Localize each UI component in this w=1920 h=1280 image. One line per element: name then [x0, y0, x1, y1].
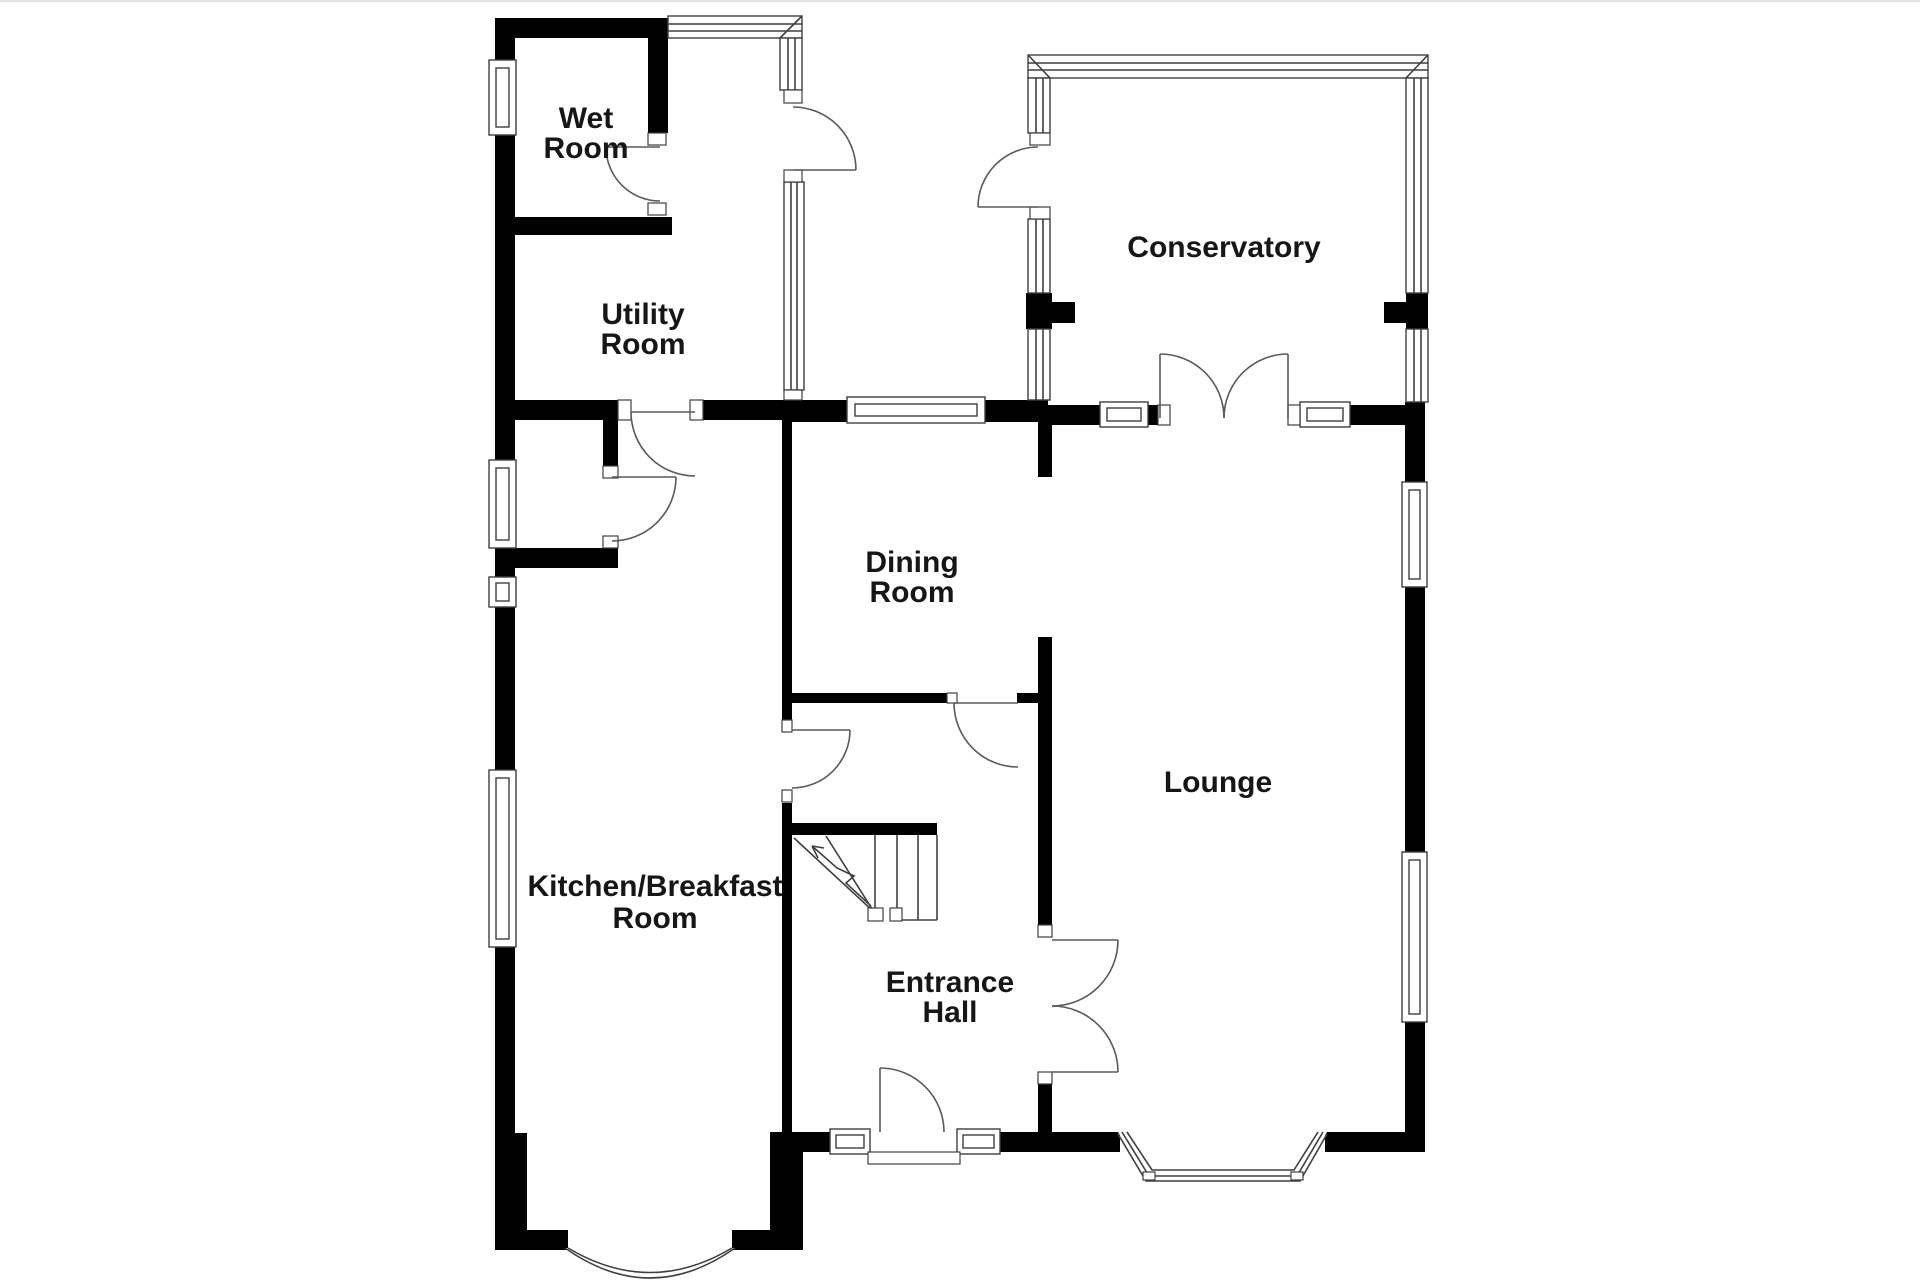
wall-segment	[792, 693, 947, 703]
wall-segment	[1000, 1132, 1038, 1152]
room-label-wet-room-2: Room	[544, 132, 629, 165]
stairs	[794, 835, 937, 921]
wall-segment	[1405, 1022, 1425, 1152]
double-doors-lounge	[1052, 940, 1118, 1072]
window	[1402, 852, 1427, 1022]
floorplan-page: Wet Room Utility Room Conservatory Dinin…	[0, 0, 1920, 1280]
wall-segment	[1325, 1132, 1405, 1152]
wall-segment	[732, 1230, 803, 1250]
door-lobby	[612, 477, 676, 541]
window	[957, 1129, 1000, 1154]
wall-segment	[495, 607, 515, 770]
conservatory-glazed-walls	[1028, 55, 1428, 402]
french-doors-conservatory	[1160, 354, 1288, 418]
room-label-dining-1: Dining	[865, 546, 958, 579]
window	[1402, 482, 1427, 587]
conservatory-pillar-right	[1384, 293, 1428, 329]
door-utility	[631, 412, 695, 476]
wall-segment	[1038, 637, 1052, 925]
wall-segment	[1350, 405, 1405, 425]
wall-segment	[495, 400, 618, 420]
front-door-threshold	[868, 1152, 960, 1164]
room-label-utility-1: Utility	[601, 298, 685, 331]
room-label-dining-2: Room	[870, 576, 955, 609]
walls	[495, 18, 1425, 1250]
wall-segment	[1052, 1132, 1120, 1152]
window	[489, 577, 516, 607]
wall-segment	[782, 420, 792, 720]
wall-segment	[792, 823, 937, 835]
wall-segment	[495, 548, 515, 577]
wall-segment	[603, 420, 618, 466]
wall-segment	[1405, 402, 1425, 482]
wall-segment	[648, 18, 668, 133]
floorplan-canvas: Wet Room Utility Room Conservatory Dinin…	[0, 0, 1920, 1280]
room-label-utility-2: Room	[601, 328, 686, 361]
wall-segment	[1038, 1084, 1052, 1132]
wall-segment	[1048, 405, 1100, 425]
room-label-hall-1: Entrance	[886, 966, 1014, 999]
room-labels: Wet Room Utility Room Conservatory Dinin…	[527, 102, 1321, 1029]
window	[1100, 402, 1148, 427]
window	[489, 60, 516, 135]
wall-segment	[513, 548, 615, 568]
wall-segment	[703, 400, 782, 420]
wall-segment	[782, 400, 847, 422]
room-label-lounge: Lounge	[1164, 766, 1272, 799]
wall-segment	[495, 217, 672, 235]
wall-segment	[782, 803, 792, 1133]
utility-window-wall	[784, 182, 804, 400]
window	[489, 770, 516, 947]
lounge-bay-window	[1118, 1132, 1327, 1181]
stairs-up-arrow	[812, 846, 871, 906]
wall-segment	[985, 400, 1048, 422]
window	[847, 397, 985, 423]
wall-segment	[1017, 693, 1038, 703]
window	[1300, 402, 1350, 427]
room-label-kitchen-1: Kitchen/Breakfast	[527, 870, 782, 903]
door-kitchen-hall	[792, 730, 850, 788]
window	[830, 1129, 870, 1154]
door-conservatory	[978, 147, 1038, 207]
wall-segment	[1148, 405, 1158, 425]
wall-segment	[1038, 420, 1052, 477]
porch-glazed-walls	[668, 16, 802, 90]
room-label-wet-room-1: Wet	[559, 102, 613, 135]
conservatory-pillar-left	[1026, 293, 1075, 329]
wall-segment	[1038, 1132, 1052, 1152]
door-dining-hall	[954, 703, 1018, 767]
kitchen-curved-bay-window	[565, 1248, 735, 1278]
wall-segment	[1405, 587, 1425, 852]
room-label-hall-2: Hall	[922, 996, 977, 1029]
door-porch	[793, 107, 856, 170]
front-door	[868, 1068, 960, 1164]
room-label-kitchen-2: Room	[613, 902, 698, 935]
wall-segment	[495, 1230, 568, 1250]
wall-segment	[495, 947, 515, 1250]
wall-segment	[495, 18, 668, 38]
window	[489, 460, 516, 548]
room-label-conservatory: Conservatory	[1127, 231, 1321, 264]
